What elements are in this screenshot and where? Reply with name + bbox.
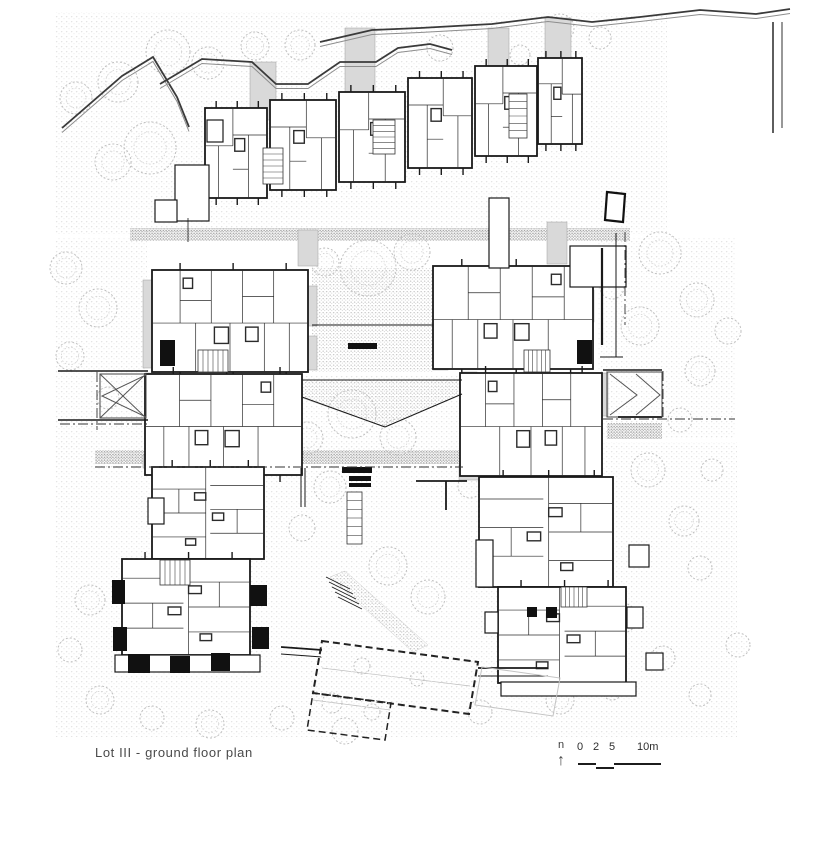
north-arrow-icon: ↑ bbox=[550, 753, 572, 769]
scale-label-0: 0 bbox=[577, 741, 583, 753]
stair-symbol bbox=[263, 148, 283, 184]
scale-bar-segment bbox=[596, 767, 614, 769]
building-module bbox=[538, 51, 582, 151]
scale-label-5: 5 bbox=[609, 741, 615, 753]
building-module bbox=[205, 101, 267, 205]
building-module bbox=[152, 460, 264, 566]
floor-plan-page: Lot III - ground floor plan n ↑ 0 2 5 10… bbox=[0, 0, 832, 861]
building-module bbox=[460, 366, 602, 483]
building-module bbox=[152, 263, 308, 379]
north-indicator: n ↑ bbox=[550, 740, 572, 769]
stair-symbol bbox=[509, 94, 527, 138]
stair-symbol bbox=[524, 350, 550, 372]
building-module bbox=[408, 71, 472, 175]
scale-bar-segment bbox=[578, 763, 596, 765]
building-module bbox=[479, 470, 613, 594]
site-plan-drawing bbox=[0, 0, 832, 861]
building-module bbox=[433, 259, 593, 376]
scale-label-10m: 10m bbox=[637, 741, 658, 753]
stair-symbol bbox=[561, 587, 587, 607]
scale-bar-segment bbox=[614, 763, 661, 765]
building-module bbox=[145, 367, 302, 482]
building-module bbox=[475, 59, 537, 163]
north-label: n bbox=[558, 739, 564, 751]
stair-symbol bbox=[347, 492, 362, 544]
stair-symbol bbox=[160, 560, 190, 585]
plan-caption: Lot III - ground floor plan bbox=[95, 745, 253, 760]
scale-label-2: 2 bbox=[593, 741, 599, 753]
stair-symbol bbox=[198, 350, 228, 372]
stair-symbol bbox=[373, 120, 395, 154]
